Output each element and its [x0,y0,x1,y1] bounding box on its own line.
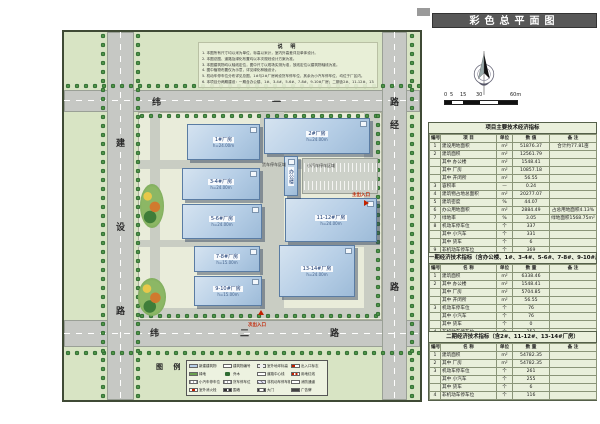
building-sublabel: h=24.00m [211,222,232,227]
table-cell: 6 [513,239,550,247]
table-cell: 机动车停车位 [441,223,497,231]
table-header-cell: 单位 [497,265,513,273]
table-cell [550,223,597,231]
table-row: 3机动车停车位个76 [430,305,597,313]
table-cell: 建设用地面积 [441,143,497,151]
table-cell: 建筑物占地总面积 [441,191,497,199]
legend: 新建建筑物建筑物编号室外地坪标高出入口标志绿地乔木道路中心线用地红线小汽车停车位… [186,360,328,396]
legend-item: 非机动车停车棚 [256,379,290,386]
scale-labels: 0 5 15 30 60m [444,92,530,99]
table-row: 2其中 办公楼m²1548.41 [430,281,597,289]
table-cell: 个 [497,223,513,231]
legend-item: 小汽车停车位 [188,379,222,386]
car-parking-label: 小汽车停车区域 [307,163,335,168]
east-road-name: 经 [390,118,399,131]
table-row: 其中 小汽车个255 [430,376,597,384]
table-header-row: 编号名 称单位数 量备 注 [430,344,597,352]
table-cell: 个 [497,239,513,247]
table-cell [430,289,441,297]
table-cell: 1548.41 [513,159,550,167]
table-header-cell: 单位 [497,344,513,352]
table-cell [550,368,597,376]
table-cell: 办公用地面积 [441,207,497,215]
table-cell: % [497,215,513,223]
table-cell [550,231,597,239]
table-header-cell: 备 注 [550,265,597,273]
table-cell: 1 [430,273,441,281]
table-cell: 个 [497,313,513,321]
table-cell: 4 [430,191,441,199]
tree-row [64,349,420,357]
legend-item-label: 消防通道 [301,380,315,385]
table-cell: 其中 货车 [441,384,497,392]
garden-feature [138,278,166,316]
legend-item: 室外消火栓 [188,387,222,394]
table-cell: 其中 小汽车 [441,313,497,321]
table-cell: m² [497,297,513,305]
table-row: 1建筑面积m²6338.46 [430,273,597,281]
table-cell [550,281,597,289]
table-cell [550,313,597,321]
table-row: 其中 厂房m²10857.18 [430,167,597,175]
building-5-6: 5-6#厂房 h=24.00m [182,204,262,239]
legend-entry-swatch-icon [291,364,300,368]
table-row: 其中 货车个0 [430,321,597,329]
table-row: 4非机动车停车位个116 [430,392,597,400]
table-cell [430,167,441,175]
legend-item-label: 道路中心线 [267,372,285,377]
table-cell [550,392,597,400]
table-title: 一期经济技术指标（含办公楼、1#、3-4#、5-6#、7-8#、9-10#厂房） [429,253,596,264]
building-13-14: 13-14#厂房 h=24.00m [279,245,355,297]
table-title: 项目主要技术经济指标 [429,123,596,134]
table-cell: 其中 厂房 [441,289,497,297]
legend-item: 新建建筑物 [188,363,222,370]
phase2-indicators-table: 二期经济技术指标（含2#、11-12#、13-14#厂房） 编号名 称单位数 量… [428,331,597,401]
table-header-cell: 备 注 [550,344,597,352]
site-plan: 说 明 1. 本图所有尺寸均以米为单位，标高以米计，室内外高差详见单体设计。 2… [62,30,422,402]
table-cell: 1 [430,352,441,360]
table-cell: 331 [513,231,550,239]
table-cell [550,167,597,175]
table-cell [550,384,597,392]
table-cell [430,321,441,329]
scale-tick: 5 [450,92,453,98]
legend-item: 围墙 [222,387,256,394]
table-cell: 337 [513,223,550,231]
table-cell: 0 [513,321,550,329]
table-cell: 合计约77.81亩 [550,143,597,151]
table-header-cell: 编号 [430,344,441,352]
legend-item: 消防通道 [290,379,324,386]
table-cell [550,175,597,183]
west-road-name: 设 [116,220,125,233]
east-road-name: 路 [390,280,399,293]
building-9-10: 9-10#厂房 h=15.00m [194,276,262,306]
table-cell: 个 [497,321,513,329]
table-cell: 1 [430,143,441,151]
scale-tick: 60m [510,92,521,98]
table-cell: 7 [430,215,441,223]
legend-item: 广告牌 [290,387,324,394]
scale-bar-segments [444,100,518,105]
north-road-name: 路 [390,95,399,108]
table-cell: 其中 开闭所 [441,175,497,183]
table-cell: 其中 小汽车 [441,376,497,384]
table-row: 3容积率—0.24 [430,183,597,191]
table-cell [550,305,597,313]
legend-item-label: 大门 [267,388,274,393]
legend-dark-swatch-icon [291,388,300,392]
table-row: 4建筑物占地总面积m²20277.07 [430,191,597,199]
legend-dot-swatch-icon [189,388,198,392]
table-cell: 机动车停车位 [441,305,497,313]
table-cell: m² [497,360,513,368]
legend-item-label: 出入口标志 [301,364,319,369]
main-entrance-arrow-icon [364,200,369,206]
table-cell: 绿地面积1568.75m² [550,215,597,223]
table-cell: 255 [513,376,550,384]
table-cell [550,352,597,360]
legend-line-swatch-icon [291,380,300,384]
table-cell [430,313,441,321]
table-cell: 建筑密度 [441,199,497,207]
table-cell: m² [497,191,513,199]
legend-bldg-swatch-icon [189,364,198,368]
table-cell [550,273,597,281]
legend-item: 建筑物编号 [222,363,256,370]
south-road-name: 路 [330,326,339,339]
table-cell: 个 [497,368,513,376]
table-header-cell: 单位 [497,135,513,143]
table-cell: 个 [497,231,513,239]
table-cell: 3 [430,183,441,191]
table-row: 其中 办公楼m²1548.41 [430,159,597,167]
building-sublabel: h=24.00m [320,221,341,226]
table-cell: 44.07 [513,199,550,207]
table-cell [550,151,597,159]
table-cell [430,159,441,167]
legend-item-label: 广告牌 [301,388,312,393]
table-cell: m² [497,281,513,289]
overall-indicators-table: 项目主要技术经济指标 编号项 目单位数 值备 注1建设用地面积m²51876.3… [428,122,597,256]
table-header-cell: 编号 [430,265,441,273]
compass-north-arrow-icon [466,50,502,96]
table-body: 编号项 目单位数 值备 注1建设用地面积m²51876.37合计约77.81亩2… [429,134,597,255]
building-sublabel: h=24.00m [210,185,231,190]
table-cell: 个 [497,392,513,400]
table-header-cell: 项 目 [441,135,497,143]
table-row: 其中 小汽车个76 [430,313,597,321]
scale-tick: 15 [460,92,466,98]
table-cell: 5704.85 [513,289,550,297]
south-road-name: 二 [240,326,249,339]
note-line: 6. 本项目分两期建设：一期含办公楼、1#、3-4#、5-6#、7-8#、9-1… [202,80,374,86]
legend-item-label: 用地红线 [301,372,315,377]
legend-redline-swatch-icon [291,372,300,376]
table-cell: 261 [513,368,550,376]
table-row: 6办公用地面积m²2884.49占总用地面积4.13% [430,207,597,215]
table-cell: — [497,183,513,191]
legend-item: 室外地坪标高 [256,363,290,370]
table-cell: 个 [497,384,513,392]
table-row: 其中 小汽车个331 [430,231,597,239]
legend-item-label: 建筑物编号 [233,364,251,369]
table-cell: 1548.41 [513,281,550,289]
west-road-name: 建 [116,136,125,149]
table-cell [550,297,597,305]
table-row: 1建筑面积m²54782.35 [430,352,597,360]
table-cell: m² [497,207,513,215]
table-cell [430,376,441,384]
table-cell: m² [497,289,513,297]
legend-item: 道路中心线 [256,371,290,378]
table-cell: 20277.07 [513,191,550,199]
legend-gate-swatch-icon [257,388,266,392]
truck-parking-label: 货车停车区域 [262,162,286,167]
table-cell: 76 [513,313,550,321]
secondary-entrance-arrow-icon [258,310,264,315]
table-cell: m² [497,352,513,360]
table-row: 2其中 厂房m²54782.35 [430,360,597,368]
table-cell: 4 [430,392,441,400]
scale-tick: 30 [476,92,482,98]
table-row: 其中 货车个6 [430,239,597,247]
building-7-8: 7-8#厂房 h=15.00m [194,246,260,272]
table-cell: 3 [430,305,441,313]
table-cell: 0.24 [513,183,550,191]
table-cell: m² [497,273,513,281]
table-row: 1建设用地面积m²51876.37合计约77.81亩 [430,143,597,151]
west-road-name: 路 [116,304,125,317]
table-cell [550,360,597,368]
garden-feature [140,184,164,228]
page-title: 彩色总平面图 [432,13,597,28]
notes-heading: 说 明 [202,44,374,51]
table-cell: 54782.35 [513,360,550,368]
table-cell: 2 [430,360,441,368]
table-cell [550,199,597,207]
legend-hatch-swatch-icon [257,380,266,384]
parking-stalls [304,181,377,190]
office-building: 办公楼 [284,156,298,196]
north-road-name: 纬 [152,95,161,108]
scale-tick: 0 [444,92,447,98]
table-header-cell: 数 量 [513,344,550,352]
table-cell: 12561.79 [513,151,550,159]
legend-item: 货车停车位 [222,379,256,386]
table-cell: 2 [430,281,441,289]
table-row: 3机动车停车位个261 [430,368,597,376]
legend-item: 乔木 [222,371,256,378]
table-cell: 其中 货车 [441,239,497,247]
building-label: 办公楼 [288,167,294,186]
table-cell: 容积率 [441,183,497,191]
table-cell [550,239,597,247]
table-cell: 56.55 [513,297,550,305]
table-cell: 54782.35 [513,352,550,360]
table-cell: 2884.49 [513,207,550,215]
table-title: 二期经济技术指标（含2#、11-12#、13-14#厂房） [429,332,596,343]
table-body: 编号名 称单位数 量备 注1建筑面积m²54782.352其中 厂房m²5478… [429,343,597,400]
legend-item-label: 乔木 [233,372,240,377]
scale-bar: 0 5 15 30 60m [444,92,530,105]
building-1: 1#厂房 h=24.00m [187,124,260,160]
table-cell: 6338.46 [513,273,550,281]
building-sublabel: h=15.00m [216,260,237,265]
building-sublabel: h=24.00m [213,143,234,148]
legend-item-label: 室外消火栓 [199,388,217,393]
table-cell: 5 [430,199,441,207]
legend-stall-swatch-icon [223,380,232,384]
south-road-name: 纬 [150,326,159,339]
secondary-entrance-label: 次出入口 [248,322,266,328]
table-cell: 116 [513,392,550,400]
legend-stall-swatch-icon [189,380,198,384]
table-cell: m² [497,151,513,159]
building-sublabel: h=24.00m [306,137,327,142]
table-header-cell: 数 量 [513,265,550,273]
table-header-cell: 编号 [430,135,441,143]
table-cell [430,297,441,305]
building-3-4: 3-4#厂房 h=24.00m [182,168,260,200]
table-cell: 56.55 [513,175,550,183]
table-cell: 非机动车停车位 [441,392,497,400]
legend-item-label: 小汽车停车位 [199,380,220,385]
legend-wall-swatch-icon [223,388,232,392]
table-cell: m² [497,143,513,151]
table-cell: 建筑面积 [441,151,497,159]
table-cell: 3 [430,368,441,376]
table-cell [550,159,597,167]
table-cell: m² [497,159,513,167]
table-cell: 个 [497,376,513,384]
building-sublabel: h=15.00m [217,292,238,297]
table-row: 其中 开闭所m²56.55 [430,297,597,305]
table-row: 其中 货车个6 [430,384,597,392]
legend-item: 出入口标志 [290,363,324,370]
table-cell: % [497,199,513,207]
table-cell: m² [497,167,513,175]
table-cell: 2 [430,151,441,159]
legend-item-label: 围墙 [233,388,240,393]
table-header-cell: 名 称 [441,344,497,352]
table-row: 8机动车停车位个337 [430,223,597,231]
table-header-cell: 名 称 [441,265,497,273]
building-2: 2#厂房 h=24.00m [264,118,370,154]
building-sublabel: h=24.00m [306,272,327,277]
legend-plate-swatch-icon [223,364,232,368]
table-cell [430,231,441,239]
table-cell [550,183,597,191]
tree-column [99,32,107,400]
table-cell: m² [497,175,513,183]
table-cell: 建筑面积 [441,273,497,281]
table-cell [430,384,441,392]
table-cell [550,321,597,329]
table-row: 5建筑密度%44.07 [430,199,597,207]
table-cell [550,376,597,384]
drawing-sheet: 彩色总平面图 说 明 1. 本图 [0,0,600,424]
table-header-cell: 备 注 [550,135,597,143]
legend-item: 绿地 [188,371,222,378]
table-cell [550,289,597,297]
table-cell: 8 [430,223,441,231]
table-cell: 51876.37 [513,143,550,151]
table-cell: 3.05 [513,215,550,223]
table-cell [430,175,441,183]
table-cell: 6 [513,384,550,392]
phase1-indicators-table: 一期经济技术指标（含办公楼、1#、3-4#、5-6#、7-8#、9-10#厂房）… [428,252,597,338]
table-row: 其中 厂房m²5704.85 [430,289,597,297]
table-cell: 机动车停车位 [441,368,497,376]
table-cell: 其中 小汽车 [441,231,497,239]
legend-item: 用地红线 [290,371,324,378]
legend-item-label: 货车停车位 [233,380,251,385]
north-road-name: 一 [272,95,281,108]
table-row: 其中 开闭所m²56.55 [430,175,597,183]
table-body: 编号名 称单位数 量备 注1建筑面积m²6338.462其中 办公楼m²1548… [429,264,597,337]
table-cell: 绿地率 [441,215,497,223]
legend-item-label: 非机动车停车棚 [267,380,290,385]
table-cell: 建筑面积 [441,352,497,360]
table-cell: 6 [430,207,441,215]
table-header-row: 编号项 目单位数 值备 注 [430,135,597,143]
table-cell: 个 [497,305,513,313]
table-cell: 占总用地面积4.13% [550,207,597,215]
table-cell: 其中 开闭所 [441,297,497,305]
legend-heading: 图 例 [156,362,184,372]
table-cell: 其中 办公楼 [441,281,497,289]
table-cell: 其中 厂房 [441,360,497,368]
legend-item-label: 绿地 [199,372,206,377]
table-cell [550,191,597,199]
main-entrance-label: 主出入口 [352,192,370,198]
table-cell: 其中 办公楼 [441,159,497,167]
table-cell [430,239,441,247]
table-header-cell: 数 值 [513,135,550,143]
table-cell: 76 [513,305,550,313]
table-header-row: 编号名 称单位数 量备 注 [430,265,597,273]
legend-item-label: 新建建筑物 [199,364,217,369]
road-centerline [64,100,420,101]
legend-green-swatch-icon [189,372,198,376]
table-row: 2建筑面积m²12561.79 [430,151,597,159]
legend-item: 大门 [256,387,290,394]
table-cell: 10857.18 [513,167,550,175]
table-row: 7绿地率%3.05绿地面积1568.75m² [430,215,597,223]
title-bar-tab [417,8,430,16]
legend-level-swatch-icon [257,364,266,368]
table-cell: 其中 货车 [441,321,497,329]
legend-item-label: 室外地坪标高 [267,364,288,369]
legend-tree-swatch-icon [223,372,232,376]
table-cell: 其中 厂房 [441,167,497,175]
notes-block: 说 明 1. 本图所有尺寸均以米为单位，标高以米计，室内外高差详见单体设计。 2… [198,42,378,88]
legend-line-swatch-icon [257,372,266,376]
tree-column [408,32,416,400]
